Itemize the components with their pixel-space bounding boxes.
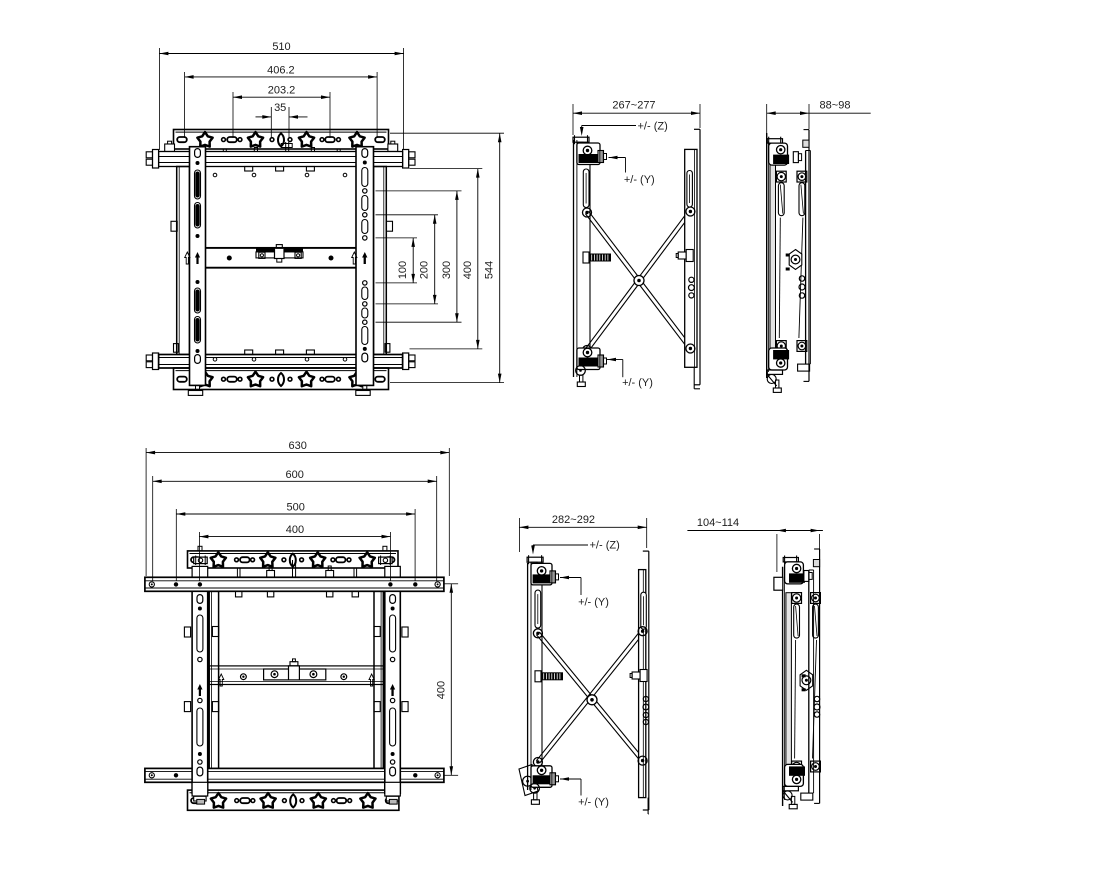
svg-text:600: 600 (286, 469, 304, 481)
svg-text:88~98: 88~98 (820, 100, 851, 112)
svg-text:510: 510 (272, 41, 290, 53)
svg-text:+/- (Y): +/- (Y) (578, 797, 609, 809)
svg-text:+/- (Y): +/- (Y) (622, 377, 653, 389)
svg-text:544: 544 (484, 261, 496, 279)
svg-text:400: 400 (435, 681, 447, 699)
svg-text:+/- (Z): +/- (Z) (590, 540, 620, 552)
svg-text:400: 400 (286, 524, 304, 536)
svg-text:282~292: 282~292 (552, 514, 595, 526)
svg-text:35: 35 (274, 102, 286, 114)
svg-text:104~114: 104~114 (697, 517, 739, 529)
svg-text:406.2: 406.2 (267, 64, 295, 76)
svg-text:+/- (Z): +/- (Z) (638, 121, 668, 133)
svg-text:400: 400 (462, 261, 474, 279)
svg-text:+/- (Y): +/- (Y) (624, 174, 655, 186)
svg-text:100: 100 (397, 261, 409, 279)
svg-text:267~277: 267~277 (612, 100, 655, 112)
svg-text:630: 630 (289, 440, 307, 452)
svg-text:500: 500 (287, 502, 305, 514)
svg-text:300: 300 (441, 261, 453, 279)
svg-text:+/- (Y): +/- (Y) (578, 597, 609, 609)
svg-text:200: 200 (419, 261, 431, 279)
svg-text:203.2: 203.2 (268, 85, 296, 97)
